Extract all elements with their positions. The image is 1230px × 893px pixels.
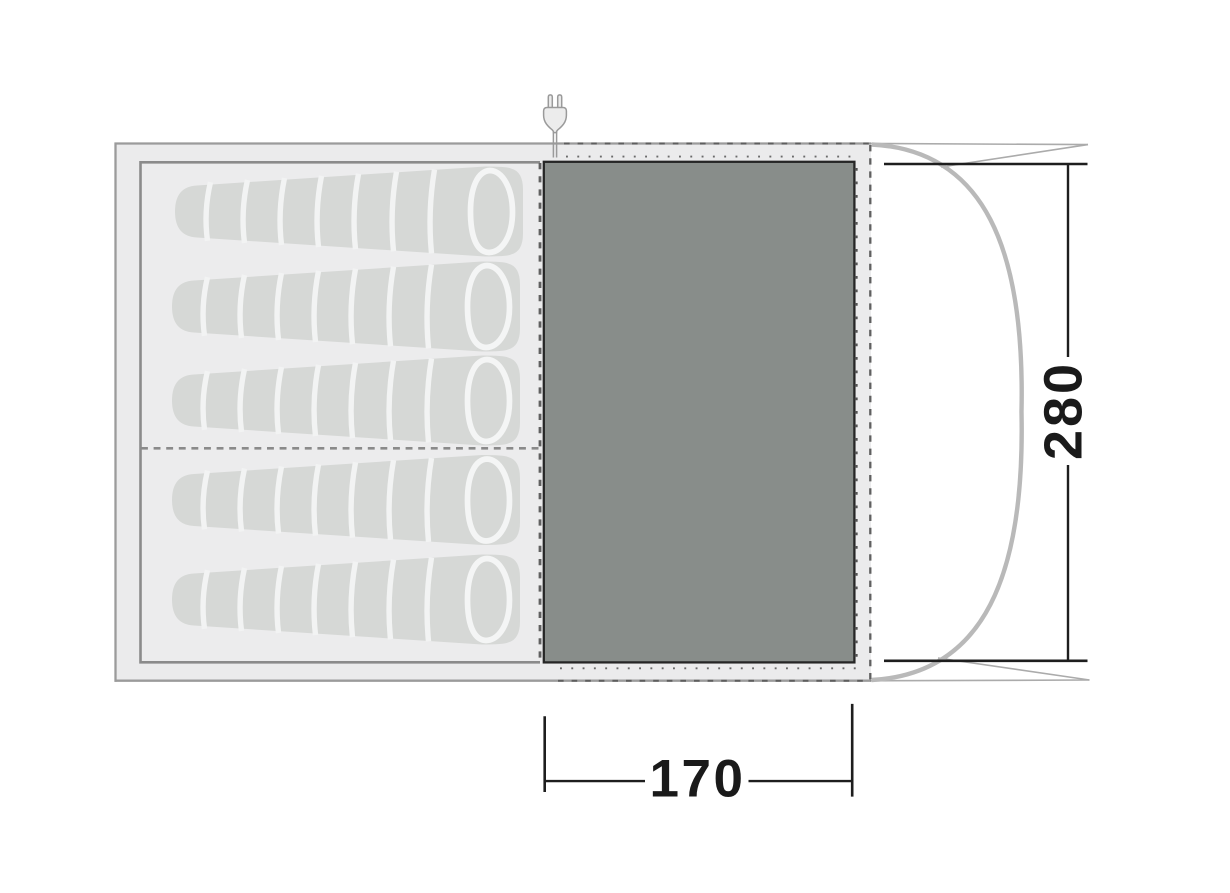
svg-text:280: 280 xyxy=(1034,361,1094,460)
svg-text:170: 170 xyxy=(650,750,746,809)
